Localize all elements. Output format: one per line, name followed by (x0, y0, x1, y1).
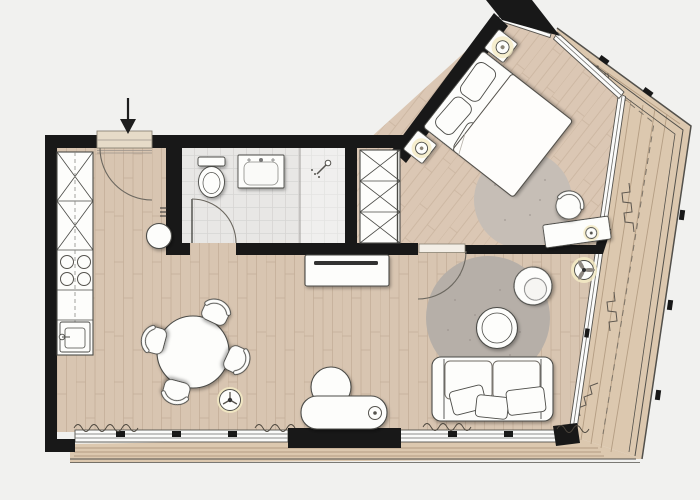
hall-stool (147, 224, 172, 249)
entrance-door-leaf (97, 131, 152, 148)
floor-lamp-icon (217, 387, 243, 413)
wall-southwest-stub (45, 439, 75, 452)
wall-north-right (152, 135, 408, 148)
floor-plan-page (0, 0, 700, 500)
bedroom-wardrobe (360, 150, 400, 243)
wall-bedroom-living-divider (465, 245, 598, 254)
pillow (475, 394, 509, 419)
coffee-table (477, 308, 518, 349)
wall-west (45, 135, 57, 452)
sofa (432, 357, 553, 421)
shower-area (300, 148, 345, 243)
kitchen-sink (59, 322, 90, 352)
tv-screen (314, 261, 378, 265)
bedroom-door-leaf (419, 244, 465, 253)
window-south-left (75, 430, 288, 442)
pillow (506, 386, 547, 415)
washbasin (238, 155, 284, 188)
ceiling-fan-icon (571, 257, 597, 283)
kitchen-wall-unit (57, 152, 93, 355)
floor-plan-canvas (0, 0, 700, 500)
wall-bathroom-south-left (166, 243, 190, 255)
wall-bathroom-east (345, 148, 357, 255)
wall-southeast-post (553, 423, 580, 446)
wall-south-pier (288, 428, 401, 448)
dining-table (157, 316, 229, 388)
wall-north-left (45, 135, 100, 148)
window-south-right (400, 430, 557, 442)
wall-bathroom-south-right (236, 243, 418, 255)
tv-sideboard (305, 255, 389, 286)
toilet (198, 157, 225, 198)
